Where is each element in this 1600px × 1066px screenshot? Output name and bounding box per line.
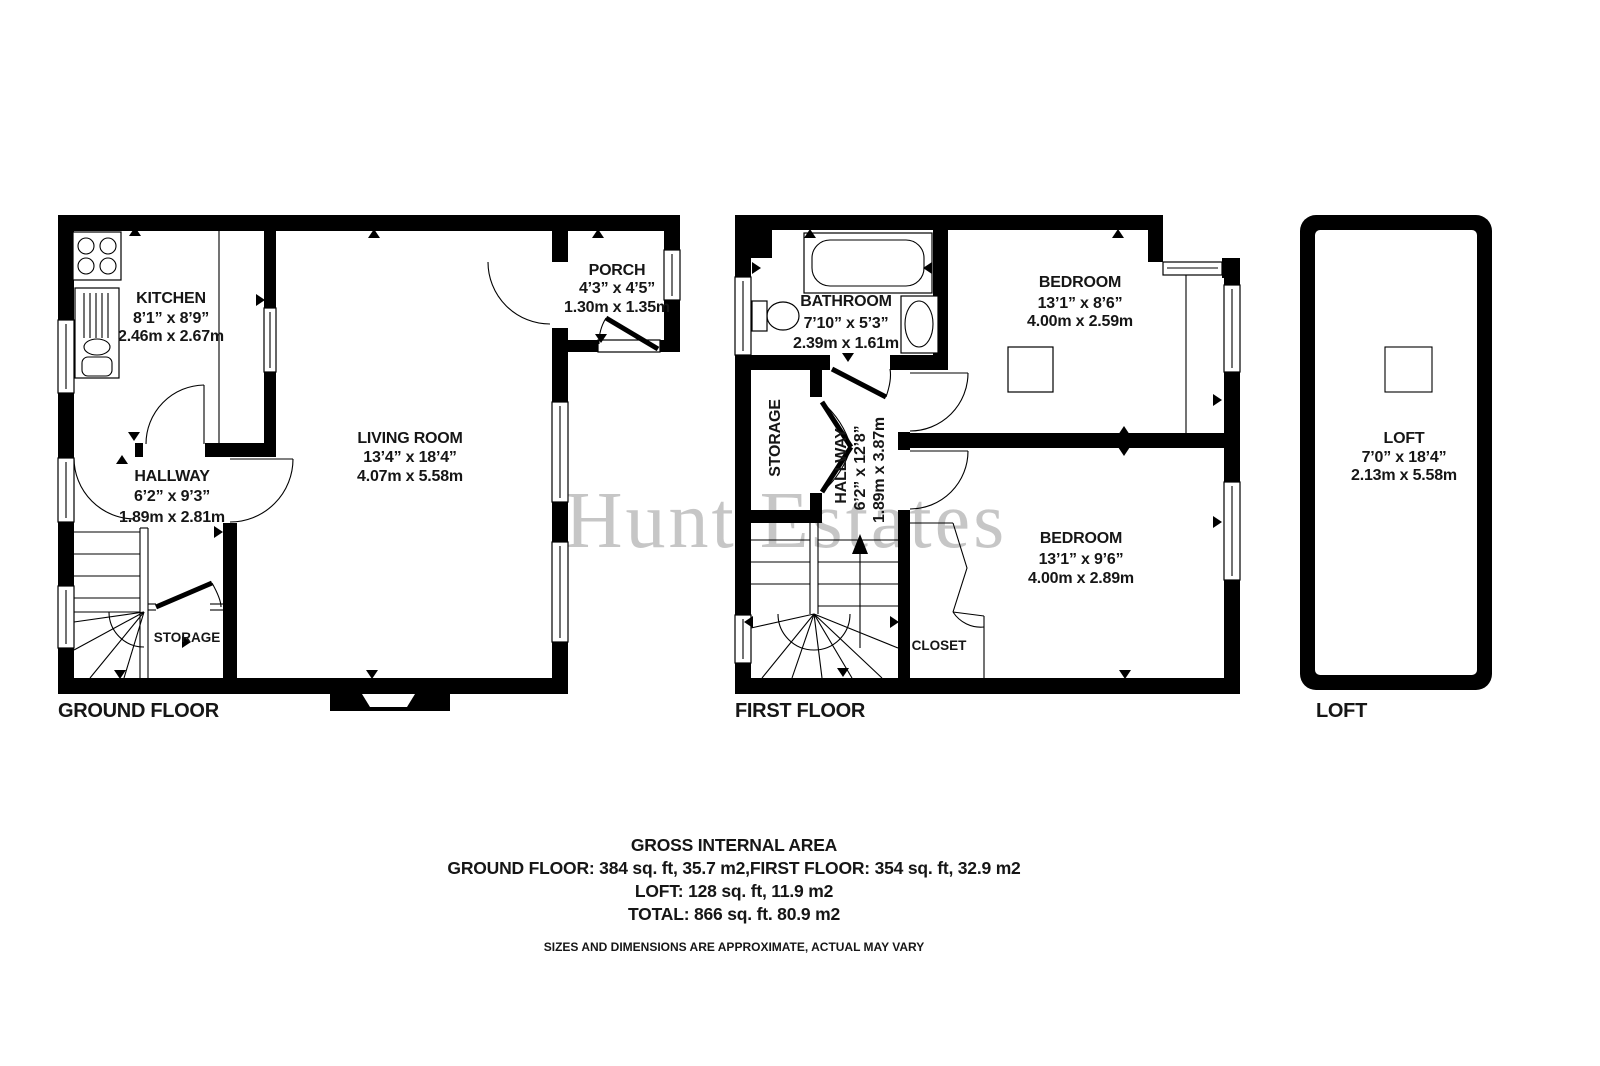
- wall: [751, 510, 822, 523]
- bedroom-rear-label: BEDROOM: [1040, 530, 1122, 547]
- loft-dim-metric: 2.13m x 5.58m: [1351, 467, 1457, 484]
- wall: [660, 340, 680, 352]
- door-opening: [552, 262, 568, 328]
- floorplan-page: Hunt Estates: [0, 0, 1600, 1066]
- bath-dim-imperial: 7’10” x 5’3”: [804, 315, 889, 332]
- kitchen-label: KITCHEN: [136, 290, 206, 307]
- summary-total: TOTAL: 866 sq. ft. 80.9 m2: [628, 904, 840, 924]
- hallway-dim-imperial: 6’2” x 9’3”: [134, 488, 210, 505]
- hallway-label: HALLWAY: [134, 468, 210, 485]
- storage-label: STORAGE: [154, 630, 221, 645]
- summary-disclaimer: SIZES AND DIMENSIONS ARE APPROXIMATE, AC…: [544, 940, 924, 954]
- loft-hatch-icon: [1008, 347, 1053, 392]
- stove-icon: [73, 232, 121, 280]
- ff-hallway-dim-imperial: 6’2” x 12’8”: [852, 426, 869, 511]
- wall: [898, 510, 910, 678]
- summary-title: GROSS INTERNAL AREA: [631, 835, 838, 855]
- ff-storage-label: STORAGE: [767, 399, 784, 477]
- toilet-cistern: [752, 301, 767, 331]
- porch-label: PORCH: [589, 262, 646, 279]
- loft-plan: LOFT 7’0” x 18’4” 2.13m x 5.58m LOFT: [1300, 215, 1492, 722]
- ground-floor-title: GROUND FLOOR: [58, 700, 220, 722]
- toilet-icon: [767, 302, 799, 330]
- floorplan-drawing: Hunt Estates: [0, 0, 1600, 1066]
- living-room-label: LIVING ROOM: [357, 430, 462, 447]
- porch-dim-imperial: 4’3” x 4’5”: [579, 280, 655, 297]
- wall: [890, 355, 948, 370]
- kitchen-dim-metric: 2.46m x 2.67m: [118, 328, 224, 345]
- summary-loft-area: LOFT: 128 sq. ft, 11.9 m2: [635, 881, 834, 901]
- bath-label: BATHROOM: [800, 293, 891, 310]
- wall: [552, 340, 598, 352]
- wall: [223, 523, 237, 678]
- wall: [898, 433, 1240, 448]
- ff-hallway-dim-metric: 1.89m x 3.87m: [871, 417, 888, 523]
- porch-dim-metric: 1.30m x 1.35m: [564, 299, 670, 316]
- living-room-dim-metric: 4.07m x 5.58m: [357, 468, 463, 485]
- bedroom-rear-dim-metric: 4.00m x 2.89m: [1028, 570, 1134, 587]
- wall: [1148, 230, 1163, 262]
- bathtub-icon: [804, 233, 932, 293]
- chimney-recess: [362, 694, 415, 707]
- loft-dim-imperial: 7’0” x 18’4”: [1362, 449, 1447, 466]
- ff-hallway-label: HALLWAY: [833, 428, 850, 504]
- bedroom-front-dim-metric: 4.00m x 2.59m: [1027, 313, 1133, 330]
- loft-label: LOFT: [1384, 430, 1425, 447]
- wall: [735, 678, 1240, 694]
- closet-label: CLOSET: [912, 638, 968, 653]
- kitchen-dim-imperial: 8’1” x 8’9”: [133, 310, 209, 327]
- first-floor-title: FIRST FLOOR: [735, 700, 866, 722]
- hallway-dim-metric: 1.89m x 2.81m: [119, 509, 225, 526]
- wall: [135, 443, 143, 457]
- wall: [58, 678, 568, 694]
- wall: [735, 215, 1163, 230]
- wall: [58, 215, 680, 231]
- bedroom-rear-dim-imperial: 13’1” x 9’6”: [1039, 551, 1124, 568]
- bedroom-front-dim-imperial: 13’1” x 8’6”: [1038, 295, 1123, 312]
- wall: [751, 355, 830, 370]
- wall: [810, 370, 822, 397]
- living-room-dim-imperial: 13’4” x 18’4”: [363, 449, 456, 466]
- summary-areas: GROUND FLOOR: 384 sq. ft, 35.7 m2,FIRST …: [447, 858, 1021, 878]
- bedroom-front-label: BEDROOM: [1039, 274, 1121, 291]
- loft-title: LOFT: [1316, 700, 1367, 722]
- wall: [205, 443, 276, 457]
- bath-dim-metric: 2.39m x 1.61m: [793, 335, 899, 352]
